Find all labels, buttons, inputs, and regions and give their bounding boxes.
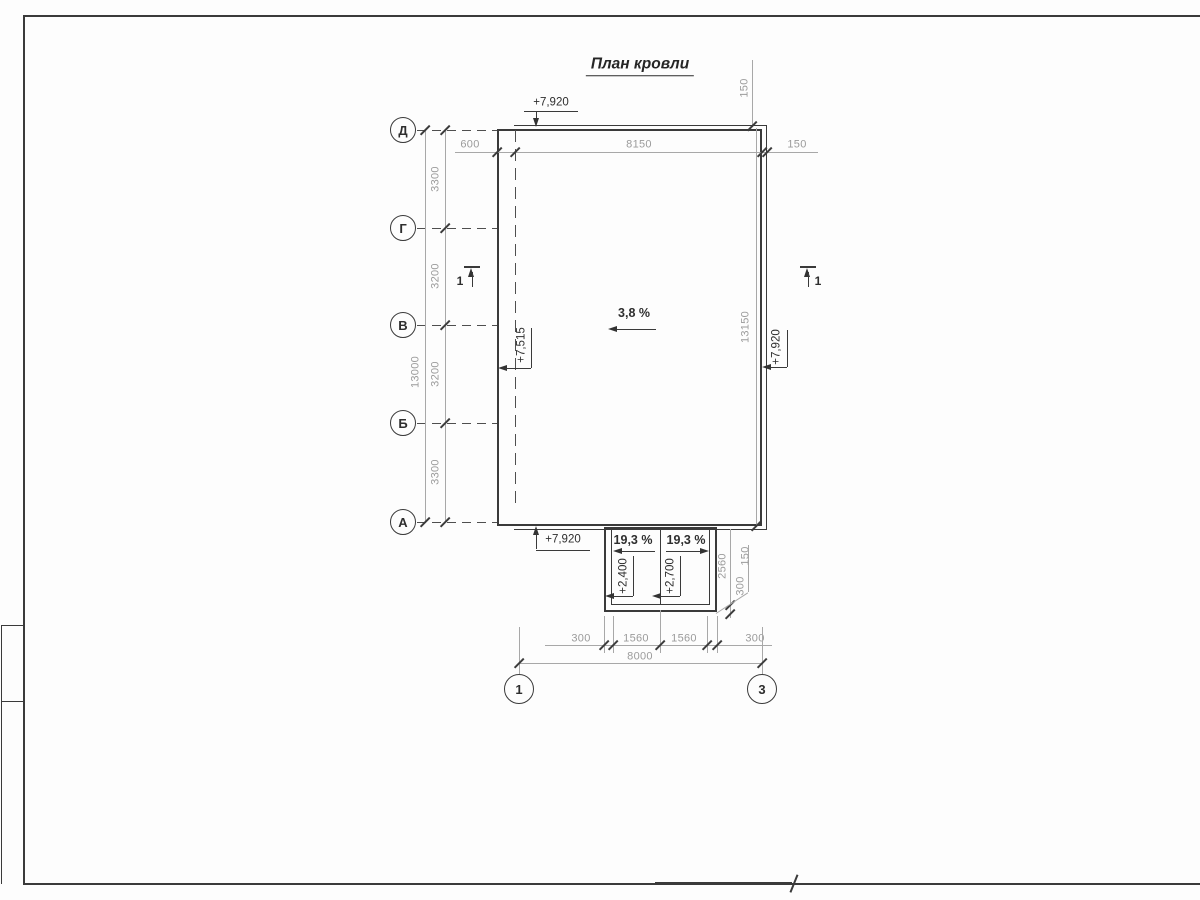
elevation-leader	[505, 368, 531, 369]
extension-line	[519, 627, 520, 674]
margin-box-line	[1, 625, 23, 626]
axis-circle-b: Б	[390, 410, 416, 436]
section-mark-line	[808, 272, 810, 287]
dim-bottom-1560-right: 1560	[671, 634, 697, 645]
elevation-leader	[536, 533, 537, 549]
dim-span-g-v: 3200	[431, 263, 442, 289]
slope-arrow-icon	[608, 326, 617, 332]
grid-axis-line	[417, 228, 497, 229]
grid-axis-line	[417, 130, 497, 131]
dim-overhang: 600	[460, 140, 479, 151]
extension-line	[613, 616, 614, 653]
dim-span-v-b: 3200	[431, 361, 442, 387]
axis-label: 3	[758, 682, 765, 697]
grid-axis-line	[417, 423, 497, 424]
dim-bottom-300-left: 300	[571, 634, 590, 645]
grid-axis-line	[417, 325, 497, 326]
parapet-edge-top	[514, 125, 767, 126]
slope-arrow-line	[619, 551, 655, 552]
elevation-leader	[612, 596, 633, 597]
elevation-leader	[680, 556, 681, 596]
elevation-leader	[769, 367, 787, 368]
dim-canopy-parapet: 150	[741, 546, 752, 565]
extension-line	[762, 627, 763, 674]
elevation-leader	[531, 328, 532, 368]
axis-label: А	[398, 515, 407, 530]
dimension-line	[519, 663, 762, 664]
axis-circle-1: 1	[504, 674, 534, 704]
parapet-edge-right	[766, 125, 767, 530]
axis-label: Д	[398, 123, 407, 138]
frame-left-line	[23, 15, 25, 884]
slope-main: 3,8 %	[618, 307, 650, 320]
axis-circle-3: 3	[747, 674, 777, 704]
elevation-leader	[659, 596, 680, 597]
frame-top-line	[23, 15, 1200, 17]
dim-span-d-g: 3300	[431, 166, 442, 192]
dim-parapet-v: 150	[740, 78, 751, 97]
elevation-underline	[524, 111, 578, 112]
dim-total-left: 13000	[411, 356, 422, 388]
slope-canopy-left: 19,3 %	[614, 534, 653, 547]
dimension-line	[445, 130, 446, 522]
axis-label: 1	[515, 682, 522, 697]
slope-arrow-icon	[613, 548, 622, 554]
dim-bottom-1560-left: 1560	[623, 634, 649, 645]
frame-bottom-line	[23, 883, 1200, 885]
elevation-underline	[536, 550, 590, 551]
extension-line	[660, 610, 661, 653]
dimension-line	[752, 60, 753, 127]
drawing-title: План кровли	[586, 56, 694, 76]
axis-label: В	[398, 318, 407, 333]
slope-arrow-line	[666, 551, 702, 552]
axis-circle-v: В	[390, 312, 416, 338]
roof-outline	[497, 129, 762, 526]
dimension-line	[425, 130, 426, 522]
elevation-canopy-right: +2,700	[665, 558, 677, 594]
elevation-roof-left: +7,515	[516, 327, 528, 363]
axis-label: Б	[398, 416, 407, 431]
elevation-roof-bottom: +7,920	[545, 534, 581, 546]
axis-circle-a: А	[390, 509, 416, 535]
slope-arrow-line	[615, 329, 656, 330]
dim-span-b-a: 3300	[431, 459, 442, 485]
slope-canopy-right: 19,3 %	[667, 534, 706, 547]
section-mark-line	[472, 272, 474, 287]
dim-bottom-total: 8000	[627, 652, 653, 663]
grid-axis-line	[417, 522, 497, 523]
extension-line	[604, 616, 605, 653]
elevation-leader	[787, 330, 788, 367]
dim-roof-width: 8150	[626, 140, 652, 151]
axis-circle-d: Д	[390, 117, 416, 143]
axis-circle-g: Г	[390, 215, 416, 241]
margin-box-line	[1, 625, 2, 884]
dim-roof-length: 13150	[741, 311, 752, 343]
elevation-canopy-left: +2,400	[618, 558, 630, 594]
margin-box-line	[1, 701, 23, 702]
extension-line	[707, 616, 708, 653]
dim-canopy-offset: 300	[736, 576, 747, 595]
section-number-left: 1	[457, 275, 464, 287]
frame-heavy-segment	[655, 882, 792, 885]
extension-line	[717, 616, 718, 653]
slope-arrow-icon	[700, 548, 709, 554]
elevation-arrow-icon	[533, 118, 539, 127]
drawing-sheet: План кровли Д Г В Б А 3300 3200 3200 330…	[0, 0, 1200, 900]
elevation-roof-top: +7,920	[533, 97, 569, 109]
dimension-line	[756, 128, 757, 527]
dim-canopy-depth: 2560	[718, 553, 729, 579]
axis-label: Г	[399, 221, 406, 236]
elevation-roof-right: +7,920	[771, 329, 783, 365]
section-number-right: 1	[815, 275, 822, 287]
elevation-leader	[633, 556, 634, 596]
dim-parapet-h: 150	[787, 140, 806, 151]
grid-line-1-dashed	[515, 130, 516, 508]
